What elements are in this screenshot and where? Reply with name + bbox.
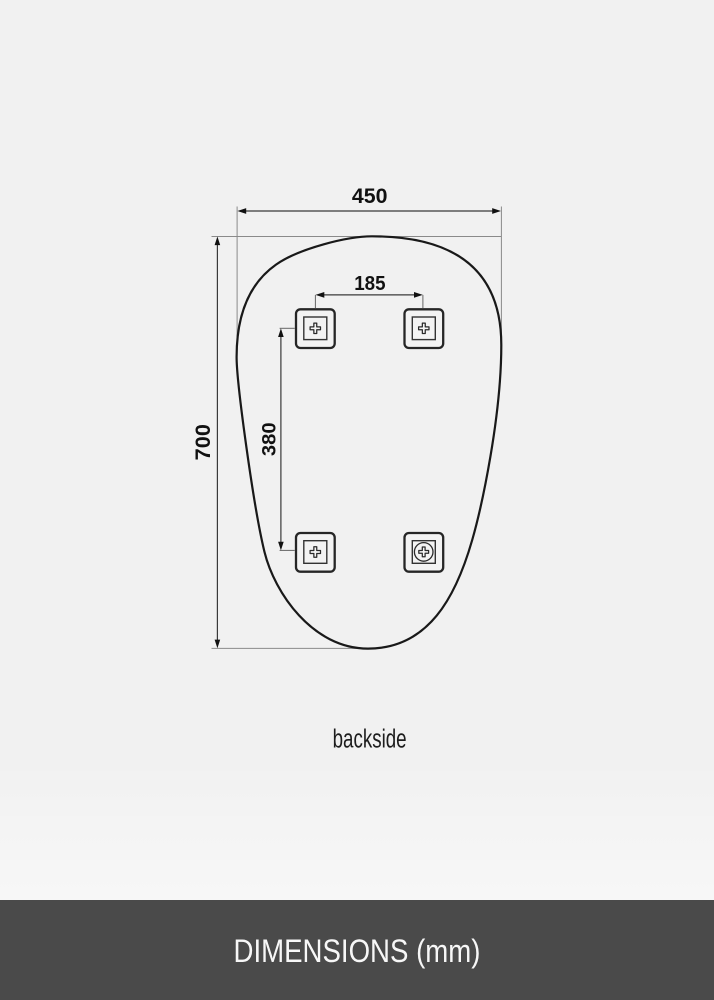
svg-text:DIMENSIONS (mm): DIMENSIONS (mm) (234, 933, 481, 969)
svg-text:380: 380 (259, 422, 281, 456)
svg-text:700: 700 (192, 424, 215, 460)
svg-text:185: 185 (354, 272, 385, 295)
svg-text:backside: backside (333, 725, 407, 753)
svg-text:450: 450 (352, 185, 388, 208)
